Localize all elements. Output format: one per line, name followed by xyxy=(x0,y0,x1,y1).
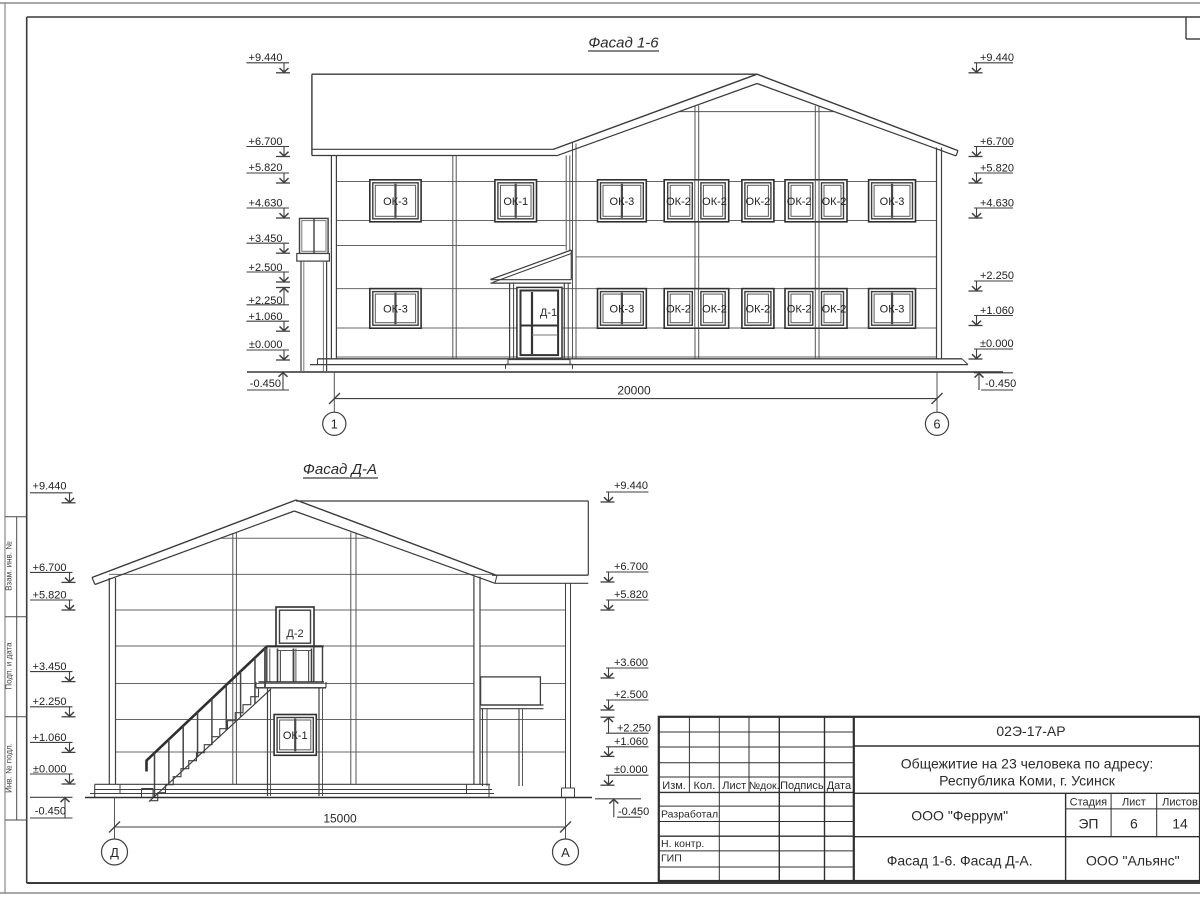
svg-text:ОК-3: ОК-3 xyxy=(610,196,635,208)
svg-text:±0.000: ±0.000 xyxy=(249,339,283,351)
svg-text:02Э-17-АР: 02Э-17-АР xyxy=(996,723,1065,739)
svg-text:Инв. № подл.: Инв. № подл. xyxy=(5,743,14,793)
svg-text:ОК-3: ОК-3 xyxy=(383,303,408,315)
svg-text:ОК-2: ОК-2 xyxy=(787,196,812,208)
svg-text:Кол.: Кол. xyxy=(694,780,716,792)
svg-text:Лист: Лист xyxy=(722,780,746,792)
svg-text:Фасад 1-6. Фасад Д-А.: Фасад 1-6. Фасад Д-А. xyxy=(887,853,1033,869)
svg-text:Листов: Листов xyxy=(1162,796,1198,808)
svg-text:№док.: №док. xyxy=(749,780,780,792)
svg-text:ОК-2: ОК-2 xyxy=(702,196,727,208)
svg-text:Подпись: Подпись xyxy=(780,780,824,792)
svg-text:Разработал: Разработал xyxy=(661,809,718,821)
svg-text:Стадия: Стадия xyxy=(1070,796,1108,808)
svg-text:-0.450: -0.450 xyxy=(618,806,649,818)
svg-text:Д-1: Д-1 xyxy=(540,307,557,319)
svg-text:ООО "Альянс": ООО "Альянс" xyxy=(1086,853,1180,869)
svg-text:20000: 20000 xyxy=(617,384,651,398)
svg-text:Республика Коми, г. Усинск: Республика Коми, г. Усинск xyxy=(939,773,1116,789)
svg-text:ОК-2: ОК-2 xyxy=(746,196,771,208)
svg-text:ОК-2: ОК-2 xyxy=(666,196,691,208)
svg-text:+9.440: +9.440 xyxy=(249,52,283,64)
svg-text:ОК-2: ОК-2 xyxy=(822,303,847,315)
svg-text:ОК-3: ОК-3 xyxy=(383,196,408,208)
svg-text:Д-2: Д-2 xyxy=(286,628,303,640)
svg-text:ОК-3: ОК-3 xyxy=(880,196,905,208)
svg-text:Н. контр.: Н. контр. xyxy=(661,838,704,850)
svg-text:+9.440: +9.440 xyxy=(980,52,1014,64)
svg-text:ОК-2: ОК-2 xyxy=(822,196,847,208)
svg-text:+5.820: +5.820 xyxy=(614,589,648,601)
svg-text:1: 1 xyxy=(331,416,338,431)
svg-text:ОК-2: ОК-2 xyxy=(787,303,812,315)
svg-text:+2.250: +2.250 xyxy=(33,696,67,708)
svg-text:+5.820: +5.820 xyxy=(249,162,283,174)
svg-text:ОК-3: ОК-3 xyxy=(880,303,905,315)
svg-text:+9.440: +9.440 xyxy=(614,480,648,492)
svg-text:6: 6 xyxy=(933,416,940,431)
svg-text:Фасад Д-А: Фасад Д-А xyxy=(303,461,377,478)
svg-text:+1.060: +1.060 xyxy=(614,736,648,748)
svg-text:ООО "Феррум": ООО "Феррум" xyxy=(911,808,1008,824)
svg-text:Фасад 1-6: Фасад 1-6 xyxy=(588,35,659,52)
svg-text:А: А xyxy=(561,845,570,860)
svg-text:+2.500: +2.500 xyxy=(614,689,648,701)
svg-text:-0.450: -0.450 xyxy=(250,378,281,390)
svg-text:±0.000: ±0.000 xyxy=(980,338,1014,350)
svg-text:ОК-3: ОК-3 xyxy=(610,303,635,315)
svg-text:14: 14 xyxy=(1172,816,1188,832)
svg-text:ОК-2: ОК-2 xyxy=(666,303,691,315)
svg-text:Подп. и дата: Подп. и дата xyxy=(5,642,14,690)
svg-text:6: 6 xyxy=(1130,816,1138,832)
svg-text:ОК-1: ОК-1 xyxy=(503,196,528,208)
svg-text:ОК-1: ОК-1 xyxy=(283,730,308,742)
svg-text:ЭП: ЭП xyxy=(1078,816,1098,832)
svg-text:+9.440: +9.440 xyxy=(33,481,67,493)
svg-text:-0.450: -0.450 xyxy=(985,378,1016,390)
svg-text:±0.000: ±0.000 xyxy=(614,764,648,776)
svg-text:Общежитие на 23 человека по ад: Общежитие на 23 человека по адресу: xyxy=(901,756,1153,772)
svg-text:Д: Д xyxy=(110,845,119,860)
svg-text:+3.600: +3.600 xyxy=(614,657,648,669)
svg-text:+2.250: +2.250 xyxy=(980,270,1014,282)
svg-text:15000: 15000 xyxy=(323,812,357,826)
svg-text:Лист: Лист xyxy=(1122,796,1146,808)
svg-text:ОК-2: ОК-2 xyxy=(746,303,771,315)
svg-text:Дата: Дата xyxy=(827,780,852,792)
svg-text:Взам. инв. №: Взам. инв. № xyxy=(5,541,14,591)
svg-text:+6.700: +6.700 xyxy=(614,561,648,573)
svg-text:ОК-2: ОК-2 xyxy=(702,303,727,315)
svg-text:ГИП: ГИП xyxy=(661,853,682,865)
svg-text:Изм.: Изм. xyxy=(662,780,686,792)
svg-text:-0.450: -0.450 xyxy=(35,806,66,818)
